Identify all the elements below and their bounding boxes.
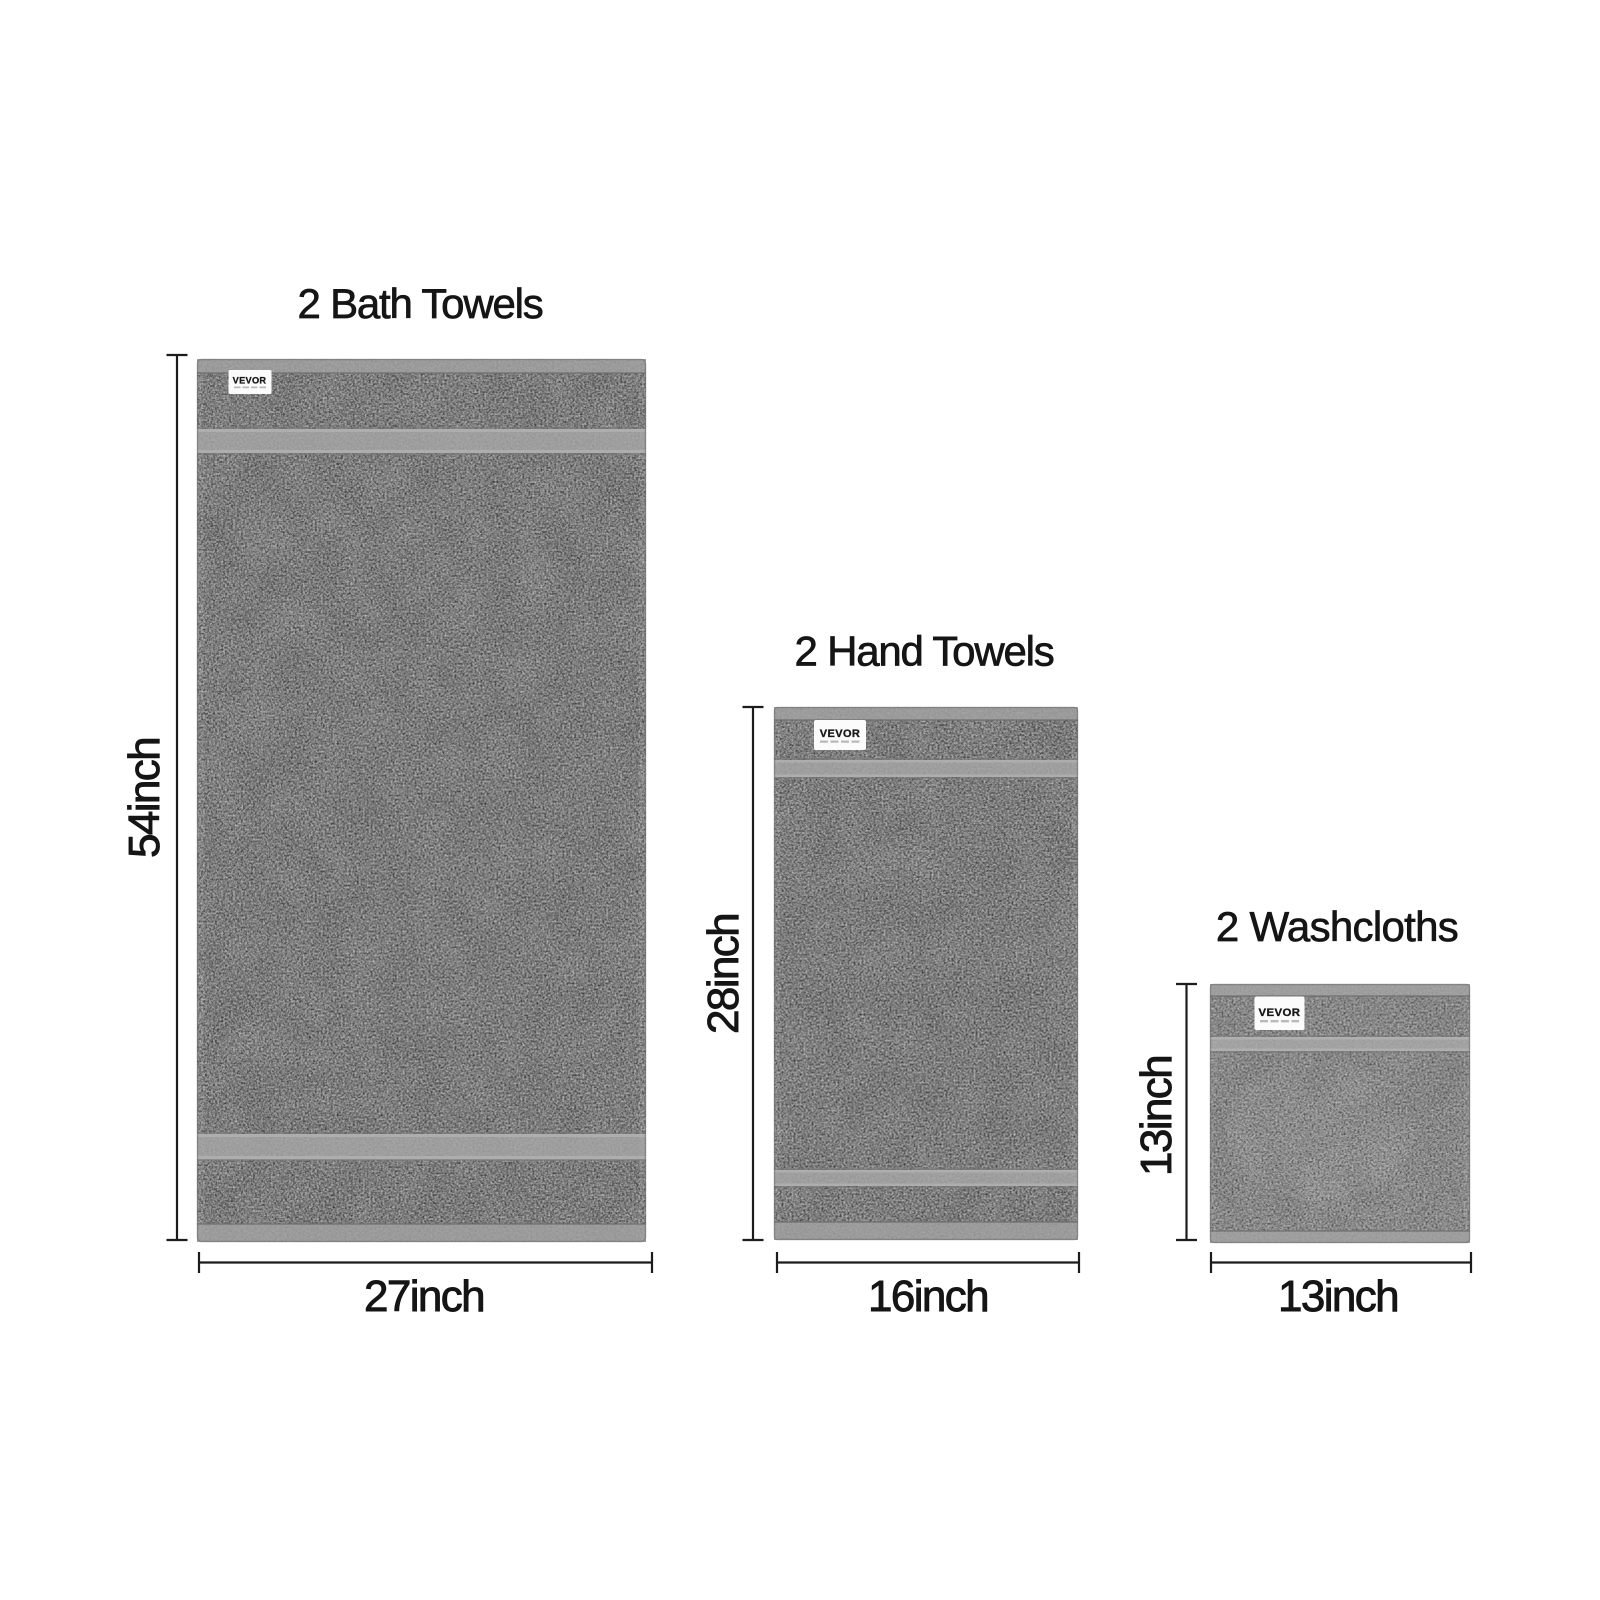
svg-text:VEVOR: VEVOR xyxy=(233,376,267,386)
svg-text:16inch: 16inch xyxy=(868,1272,988,1321)
svg-text:2 Bath Towels: 2 Bath Towels xyxy=(297,280,542,327)
svg-text:13inch: 13inch xyxy=(1132,1056,1181,1176)
svg-text:54inch: 54inch xyxy=(120,738,169,858)
svg-text:13inch: 13inch xyxy=(1278,1272,1398,1321)
svg-text:2 Washcloths: 2 Washcloths xyxy=(1216,903,1458,950)
svg-text:VEVOR: VEVOR xyxy=(820,728,861,740)
svg-text:2 Hand Towels: 2 Hand Towels xyxy=(794,628,1053,675)
svg-text:27inch: 27inch xyxy=(364,1272,484,1321)
svg-text:VEVOR: VEVOR xyxy=(1259,1007,1301,1019)
svg-text:28inch: 28inch xyxy=(699,914,748,1034)
